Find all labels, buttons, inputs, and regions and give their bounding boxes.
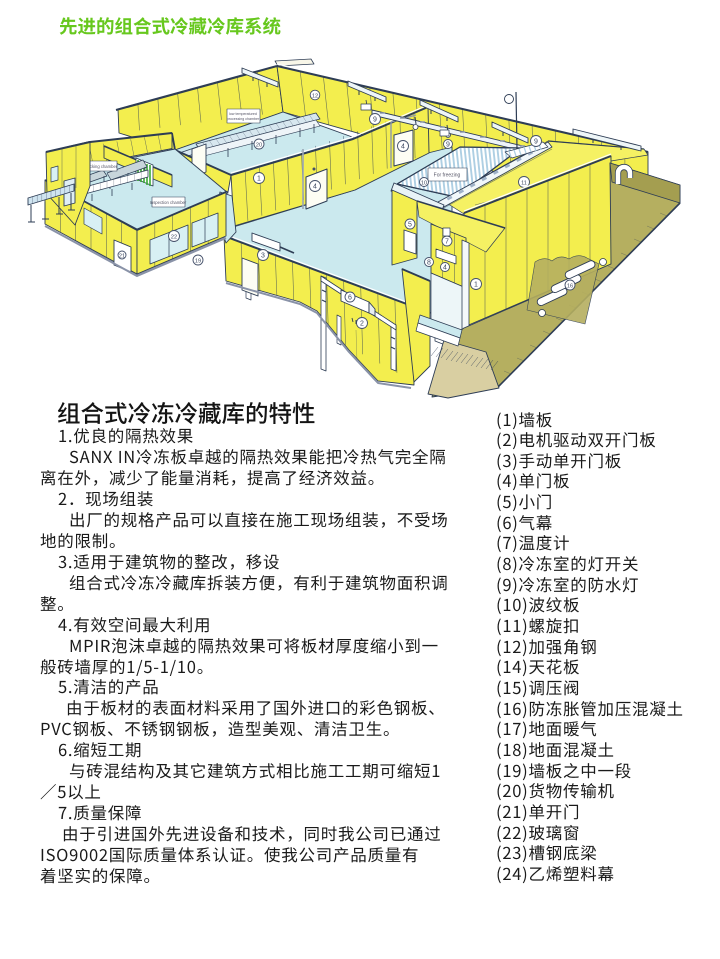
svg-text:8: 8 (427, 259, 431, 266)
svg-text:19: 19 (195, 258, 201, 264)
svg-text:1: 1 (474, 281, 478, 288)
svg-text:6: 6 (348, 294, 352, 301)
svg-text:4: 4 (443, 264, 447, 271)
svg-text:For freezing: For freezing (434, 173, 461, 179)
svg-text:21: 21 (119, 253, 125, 259)
svg-text:1: 1 (257, 175, 261, 182)
svg-text:2: 2 (360, 320, 364, 327)
svg-text:4: 4 (401, 143, 405, 150)
svg-text:7: 7 (445, 238, 449, 245)
svg-text:4: 4 (313, 183, 317, 190)
svg-text:3: 3 (261, 252, 265, 259)
svg-text:12: 12 (312, 93, 318, 99)
svg-text:low temperatured: low temperatured (229, 112, 257, 116)
svg-text:22: 22 (171, 234, 177, 240)
svg-text:9: 9 (534, 138, 538, 145)
svg-text:5: 5 (408, 221, 412, 228)
svg-text:9: 9 (446, 141, 450, 148)
svg-text:11: 11 (521, 180, 527, 186)
svg-text:Inspection chamber: Inspection chamber (150, 200, 187, 205)
svg-text:processing chamber: processing chamber (227, 117, 260, 121)
svg-text:10: 10 (421, 180, 427, 186)
svg-text:20: 20 (256, 142, 262, 148)
svg-text:16: 16 (567, 283, 573, 289)
svg-text:9: 9 (373, 116, 377, 123)
